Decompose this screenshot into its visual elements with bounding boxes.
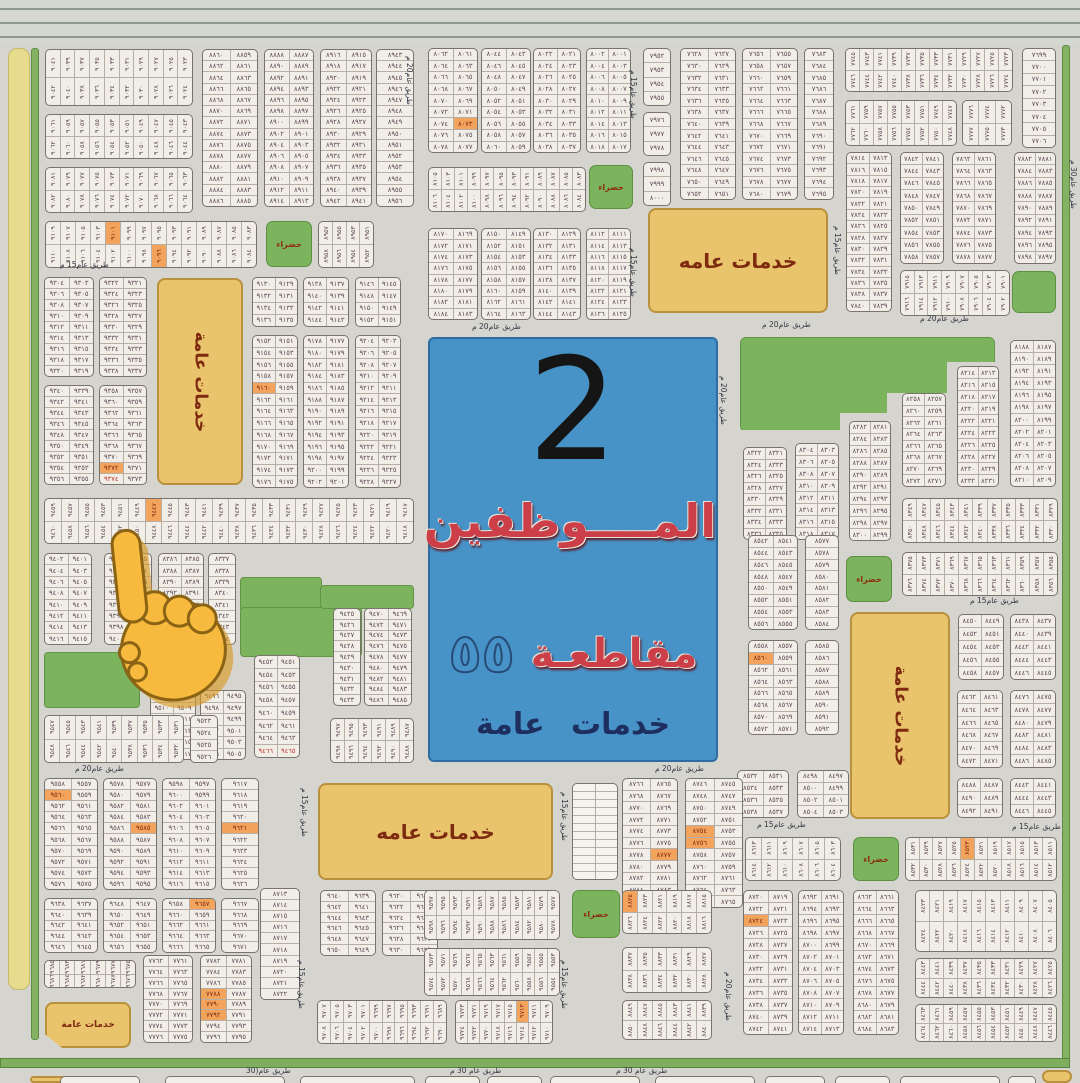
parcel-cell: ٨٠٩٧ (480, 168, 493, 189)
parcel-cell: ٨٥٣١ (906, 838, 919, 859)
parcel-cell: ٨٨٢١ (652, 891, 667, 912)
parcel-cell: ٧٩٧٧ (644, 127, 670, 140)
parcel-number: ٩٤٥٣ (99, 503, 107, 517)
parcel-row: ٨٣٢٢٨٣٢١ (744, 448, 786, 459)
parcel-row: ٧٨٨٢٧٨٨١ (1015, 153, 1055, 164)
parcel-cell: ٩٥٨٢ (104, 801, 130, 811)
parcel-cell: ٩٥٤٥ (59, 716, 74, 739)
parcel-cell: ٩٥٩٦ (436, 916, 448, 940)
parcel-cell: ٩٥٣٤ (152, 740, 167, 763)
parcel-number: ٨٦٠٧ (797, 841, 805, 855)
parcel-cell: ٧٩٠٦ (968, 294, 982, 316)
parcel-cell: ٨١٧٧ (453, 275, 478, 285)
parcel-row: ٨٢٧٠٨٢٦٩ (903, 463, 945, 475)
parcel-number: ٩٠٧٠ (137, 194, 145, 208)
parcel-block: ٩٧٠٧٩٧٠٥٩٧٠٣٩٧٠١٩٦٩٩٩٦٩٧٩٦٩٥٩٦٩٣٩٦٩١٩٦٨٩… (317, 1000, 447, 1044)
parcel-cell: ٨٧٨٢ (623, 873, 650, 884)
parcel-cell: ٩٥٥٩ (510, 949, 522, 972)
parcel-cell: ٩١٠١ (105, 222, 120, 244)
parcel-number: ٩٥٧٤ (427, 977, 435, 991)
parcel-cell: ٧٨٥١ (922, 215, 944, 226)
parcel-row: ٨٧٤٦٨٧٤٥ (686, 779, 742, 790)
parcel-cell: ٨١٣٧ (557, 275, 581, 285)
parcel-cell: ٩٠٦٤ (177, 191, 192, 213)
parcel-cell: ٨٥٦٠ (749, 653, 773, 664)
parcel-row: ٧٧٩٢٧٧٩١ (201, 1009, 251, 1020)
parcel-number: ٨٤٤٦ (1045, 1025, 1053, 1039)
parcel-cell: ٨٨٣٦ (637, 971, 652, 993)
parcel-cell: ٨٧٣٥ (768, 987, 793, 998)
parcel-cell: ٨٤٥٧ (957, 1005, 971, 1023)
parcel-block: ٩١٣٨٩١٣٧٩١٤٠٩١٣٩٩١٤٢٩١٤١٩١٤٤٩١٤٣ (303, 277, 349, 327)
parcel-row: ٨٠٤٤٨٠٤٣ (482, 49, 530, 60)
parcel-cell: ٨٦٨٤ (854, 1023, 876, 1034)
parcel-row: ٨٥٨٣ (806, 606, 838, 618)
parcel-row: ٨٧٧٠٨٧٦٩ (623, 801, 677, 813)
parcel-row: ٨١٨٠٨١٧٩ (429, 285, 477, 296)
parcel-number: ٩٠٨١ (49, 172, 57, 186)
parcel-row: ٧٧٩٤٧٧٩٣ (201, 1020, 251, 1031)
parcel-number: ٧٧٣٦ (918, 74, 926, 88)
parcel-cell: ٩٤٦٣ (277, 733, 300, 745)
parcel-cell: ٨٤٦٤ (916, 1024, 929, 1042)
parcel-cell: ٨٧٠٠ (799, 939, 821, 950)
parcel-cell: ٨٥٢٥ (946, 838, 960, 859)
parcel-cell: ٩٦٧٥ (120, 961, 135, 974)
parcel-number: ٨٠٨٥ (562, 172, 570, 186)
parcel-cell: ٩٣٣٦ (100, 355, 123, 365)
parcel-cell: ٨٣٥٨ (1029, 575, 1043, 596)
parcel-cell: ٨٧١٣ (821, 1023, 844, 1034)
parcel-cell: ٨١٥٣ (506, 252, 531, 262)
parcel-cell: ٨٣٢١ (765, 448, 787, 459)
parcel-cell: ٩٥٨٩ (130, 846, 157, 856)
parcel-number: ٨١٠٥ (431, 172, 439, 186)
parcel-row: ٨٢٣٠٨٢٢٩ (958, 462, 998, 474)
parcel-cell: ٨٠٨٨ (546, 190, 559, 211)
parcel-cell: ٨٦١٢ (761, 860, 777, 881)
parcel-row: ٨٣٢٤٨٣٢٣ (744, 459, 786, 471)
parcel-cell: ٨٠٣٧ (557, 142, 581, 153)
parcel-cell: ٨٠١١ (608, 107, 630, 118)
parcel-block-partial (60, 1076, 140, 1083)
parcel-number: ٧٩١٤ (917, 297, 925, 311)
parcel-cell: ٩١٦٩ (275, 441, 298, 452)
parcel-row: ٧٧٠٥ (1023, 122, 1055, 134)
parcel-cell: ٩٠٣٦ (89, 78, 104, 105)
parcel-cell (595, 784, 618, 791)
parcel-cell: ٩٣٢٩ (123, 322, 147, 332)
parcel-cell: ٩٠٢٩ (133, 50, 148, 77)
parcel-cell: ٧٧٥٢ (914, 124, 928, 146)
parcel-cell: ٨٠٠٧ (608, 84, 630, 95)
parcel-cell: ٩٤٩٣ (358, 719, 372, 740)
parcel-cell: ٧٦٥٦ (743, 49, 770, 60)
parcel-number: ٨٣٤٧ (920, 503, 928, 517)
parcel-block: ٨١٧٠٨١٦٩٨١٧٢٨١٧١٨١٧٤٨١٧٣٨١٧٦٨١٧٥٨١٧٨٨١٧٧… (428, 228, 478, 320)
parcel-cell: ٩٠٤٠ (60, 78, 75, 105)
parcel-row: ٧٧٩٦٧٧٩٥ (201, 1031, 251, 1042)
parcel-cell: ٩٤٧٤ (365, 631, 388, 641)
parcel-row: ٩١٣٦٩١٣٥ (253, 314, 297, 326)
parcel-cell: ٩٣٤٣ (69, 408, 94, 418)
parcel-cell: ٩٠٥٣ (104, 115, 119, 136)
parcel-cell: ٩٠٩٩ (120, 222, 135, 244)
parcel-cell: ٨٩٥٣ (377, 162, 413, 172)
parcel-cell: ٨٤٧٧ (1033, 704, 1056, 716)
parcel-cell: ٩٤٩٦ (344, 741, 358, 762)
parcel-number: ٨٨٤١ (685, 1003, 693, 1017)
parcel-cell: ٨٤٦٥ (980, 717, 1003, 729)
parcel-row: ٧٨٢٢٧٨٢١ (847, 197, 891, 208)
parcel-cell: ٨٢٢١ (978, 415, 999, 426)
parcel-number: ٨٤٢٤ (919, 929, 927, 943)
parcel-cell: ٩١٨٠ (304, 348, 326, 359)
parcel-row: ٨١٥٨٨١٥٧ (482, 274, 530, 285)
parcel-cell: ٩٣٣٢ (100, 333, 123, 343)
parcel-number: ٨٤٤٧ (1031, 1007, 1039, 1021)
parcel-cell: ٩٠٦٩ (133, 168, 148, 190)
parcel-cell: ٧٦٨٩ (805, 119, 833, 130)
parcel-cell: ٩١٥١ (275, 336, 298, 347)
parcel-cell: ٩٤٠٩ (68, 600, 92, 610)
parcel-row: ٩٤٢٦ (334, 619, 360, 630)
parcel-cell: ٨٩٥٨ (319, 245, 332, 267)
parcel-number: ٨٤٤٣ (919, 961, 927, 975)
parcel-number: ٨٩٥٤ (349, 249, 357, 263)
parcel-cell: ٨٨٢٨ (696, 971, 711, 993)
parcel-number: ٧٧٣٩ (890, 52, 898, 66)
parcel-cell: ٧٧٦٢ (144, 956, 168, 966)
parcel-row: ٩٦١٧ (222, 779, 258, 789)
parcel-cell: ٨٥٧٩ (806, 560, 838, 571)
parcel-row: ٧٦٣٤٧٦٣٣ (681, 83, 735, 95)
parcel-row: ٧٨٢٨٧٨٢٧ (847, 232, 891, 243)
parcel-row: ٨٠٥٠٨٠٤٩ (482, 83, 530, 95)
parcel-row: ٩٦١٨ (222, 789, 258, 800)
parcel-cell: ٨٤٣٩ (1033, 628, 1056, 640)
parcel-row: ٩١٣٨٩١٣٧ (304, 278, 348, 289)
parcel-number: ٩٠٦٧ (152, 172, 160, 186)
parcel-number: ٩٧٢٤ (458, 1026, 466, 1040)
parcel-cell: ٨٥٨٣ (806, 607, 838, 618)
parcel-number: ٩٧١٦ (506, 1026, 514, 1040)
parcel-cell: ٨٧٦٢ (686, 873, 714, 884)
parcel-cell: ٨٩٥٥ (377, 185, 413, 195)
parcel-number: ٩٤٢٠ (384, 525, 392, 539)
parcel-cell: ٩٤٥٥ (277, 682, 300, 694)
parcel-cell: ٩٢٢٨ (356, 476, 378, 487)
parcel-number: ٩٥٤٨ (48, 744, 56, 758)
parcel-number: ٨٤٣٤ (989, 981, 997, 995)
parcel-cell: ٨٧٤٦ (686, 779, 714, 790)
parcel-cell: ٧٧٨٦ (201, 978, 226, 988)
parcel-cell: ٩٢٠٦ (356, 348, 378, 359)
parcel-cell: ٨٤٤٦ (1011, 805, 1033, 817)
parcel-cell: ٩٢٠٨ (356, 359, 378, 370)
parcel-cell: ٨٤٤٥ (1033, 805, 1056, 817)
parcel-number: ٩٤٤٥ (166, 503, 174, 517)
parcel-cell: ٧٨٢٦ (847, 221, 869, 231)
parcel-cell: ٨٦٦٥ (876, 915, 899, 926)
parcel-cell: ٨١٥٦ (482, 263, 506, 273)
road-label: طريق عام15 م (1012, 822, 1061, 831)
parcel-cell: ٨٩٣٩ (346, 185, 372, 195)
parcel-cell: ٩٦٩٢ (420, 1023, 433, 1044)
parcel-cell: ٩٧١٣ (516, 1001, 528, 1022)
parcel-cell: ٨٠٤٨ (482, 72, 506, 83)
parcel-cell: ٩٥٦١ (498, 949, 510, 972)
parcel-number: ٧٧٦١ (848, 105, 856, 119)
parcel-number: ٨٨٤٧ (641, 1003, 649, 1017)
parcel-row: ٨٠٥٤٨٠٥٣ (482, 106, 530, 118)
parcel-number: ٨٦١٢ (765, 863, 773, 877)
parcel-cell: ٩١٥٩ (275, 383, 298, 394)
parcel-number: ٩٠٧٨ (78, 194, 86, 208)
parcel-cell: ٩٦٧١ (222, 942, 258, 952)
parcel-number: ٩٧١٣ (518, 1004, 526, 1018)
parcel-row: ٨٧٦٢٨٧٦١ (686, 872, 742, 884)
parcel-cell: ٩٤٨٤ (365, 684, 388, 694)
parcel-cell: ٨٧١٣ (261, 889, 299, 899)
parcel-row: ٩٤٩٨٩٤٩٦٩٤٩٤٩٤٩٢٩٤٩٠٩٤٨٨ (331, 740, 413, 762)
parcel-number: ٧٧٦٠ (862, 127, 870, 141)
parcel-row: ٩٦٤٠٩٦٣٩ (321, 891, 375, 901)
parcel-row: ٧٧٤٥٧٧٤٣٧٧٤١٧٧٣٩٧٧٣٧٧٧٣٥٧٧٣٣٧٧٣١٧٧٢٩٧٧٢٧… (846, 49, 1012, 70)
parcel-cell: ٩٣٤٩ (69, 441, 94, 451)
parcel-cell: ٩٥٢٥ (191, 740, 217, 751)
parcel-row: ٨١٥٠٨١٤٩ (482, 229, 530, 239)
parcel-row: ٨٩٠٤٨٩٠٣ (265, 139, 313, 150)
parcel-row: ٨٠٥٨٨٠٥٧ (482, 129, 530, 141)
parcel-cell: ٩٤٧٩ (388, 663, 412, 673)
parcel-cell: ٨٨٨٣ (230, 185, 258, 195)
parcel-row: ٩٦٢٠ (222, 811, 258, 822)
parcel-row: ٨٨٩٦٨٨٩٥ (265, 94, 313, 105)
parcel-cell: ٩٦٤٣ (348, 913, 376, 923)
parcel-cell: ٨٤٣٦ (971, 979, 985, 998)
parcel-cell: ٩٤٠٤ (45, 565, 68, 575)
parcel-cell: ٩١٩٤ (304, 430, 326, 441)
parcel-block: ٨١١٢٨١١١٨١١٤٨١١٣٨١١٦٨١١٥٨١١٨٨١١٧٨١٢٠٨١١٩… (586, 228, 631, 320)
road-label: طريق عام15 م (560, 960, 569, 1009)
parcel-cell: ٩٤١٧ (396, 499, 413, 521)
parcel-cell: ٨٤٢٢ (929, 922, 943, 952)
parcel-cell: ٨٢٩٥ (870, 505, 891, 516)
parcel-row: ٩١٦٠٩١٥٩ (253, 382, 297, 394)
parcel-cell: ٩٦٠٦ (163, 823, 189, 833)
parcel-cell: ٨٨٣٧ (623, 948, 637, 970)
parcel-row: ٨٣٧٥٨٣٧٣٨٣٧١٨٣٦٩٨٣٦٧٨٣٦٥٨٣٦٣٨٣٦١٨٣٥٩٨٣٥٧… (903, 553, 1057, 574)
parcel-number: ٨٥١٦ (1018, 863, 1026, 877)
parcel-row: ٩٤٩٧٩٤٩٥٩٤٩٣٩٤٩١٩٤٨٩٩٤٨٧ (331, 719, 413, 740)
parcel-cell: ٨٤٦٣ (980, 704, 1003, 716)
parcel-cell: ٨٧٠٩ (821, 999, 844, 1010)
parcel-cell: ٩٤٦٤ (255, 733, 277, 745)
road-label: طريق عام15 م (629, 248, 638, 297)
parcel-cell: ٩٧٢٣ (456, 1001, 467, 1022)
parcel-cell: ٨٠٩١ (520, 168, 533, 189)
parcel-cell: ٨٣٥٩ (1015, 553, 1029, 574)
parcel-number: ٩٥٦٨ (463, 977, 471, 991)
parcel-cell: ٨٢٨٧ (870, 458, 891, 469)
parcel-row: ٨٥٨١ (806, 582, 838, 594)
parcel-cell: ٧٨٢١ (869, 198, 892, 208)
parcel-cell: ٩١٧٩ (326, 348, 349, 359)
parcel-cell: ٨١٥٧ (506, 275, 531, 285)
parcel-cell: ٨٣٣٥ (1001, 499, 1015, 520)
parcel-cell: ٨٥٦٨ (749, 700, 773, 711)
parcel-cell: ٨٣٥٧ (1029, 553, 1043, 574)
road-label: طريق عام30 م (1069, 160, 1078, 209)
parcel-row: ٨٩٥٢ (377, 150, 413, 161)
parcel-cell: ٨٤٢٤ (916, 922, 929, 952)
parcel-cell: ٩٥٨٧ (485, 891, 497, 915)
parcel-row: ٨٤٦٣٨٤٦١٨٤٥٩٨٤٥٧٨٤٥٥٨٤٥٣٨٤٥١٨٤٤٩٨٤٤٧٨٤٤٥ (916, 1005, 1056, 1023)
parcel-cell: ٨٥٤٧ (773, 571, 798, 582)
parcel-cell: ٨٨٩٦ (265, 95, 289, 105)
parcel-number: ٧٧٤٥ (848, 52, 856, 66)
parcel-cell: ٨٣٤٤ (944, 521, 958, 542)
public-services-label: خدمات عامة (61, 1020, 114, 1030)
parcel-row: ٨٩١٤٨٩١٣ (265, 195, 313, 206)
parcel-block: ٨٨٢٥٨٨٢٣٨٨٢١٨٨١٩٨٨١٧٨٨١٥٨٨٢٦٨٨٢٤٨٨٢٢٨٨٢٠… (622, 890, 712, 934)
parcel-block: ٨١٥٠٨١٤٩٨١٥٢٨١٥١٨١٥٤٨١٥٣٨١٥٦٨١٥٥٨١٥٨٨١٥٧… (481, 228, 531, 320)
parcel-cell: ٨٣٣١ (765, 506, 787, 517)
parcel-number: ٨٦٠٤ (829, 863, 837, 877)
parcel-cell: ٨٥٦٦ (749, 688, 773, 699)
parcel-cell: ٨٢٢٦ (958, 439, 978, 450)
parcel-cell: ٧٧٣١ (942, 49, 956, 70)
parcel-cell (595, 864, 618, 871)
parcel-row: ٨٦٦٢٨٦٦١ (854, 891, 898, 902)
parcel-number: ٩٠٨٨ (215, 249, 223, 263)
parcel-number: ٨٤٥٦ (975, 1025, 983, 1039)
parcel-cell: ٨٧٢٥ (768, 927, 793, 938)
parcel-number: ٨٨٢٩ (685, 952, 693, 966)
parcel-cell: ٧٦٤٢ (681, 130, 708, 141)
parcel-cell: ٩٦٠٩ (189, 846, 216, 856)
parcel-cell: ٨١١٣ (608, 240, 630, 250)
parcel-number: ٩٤١٩ (384, 503, 392, 517)
parcel-cell: ٨٦٠٤ (824, 860, 840, 881)
parcel-number: ٩٦٨٦ (48, 975, 56, 988)
parcel-row: ٩٣٤٨٩٣٤٧ (45, 429, 93, 440)
parcel-row: ٧٨٧٢٧٨٧١ (953, 214, 995, 226)
parcel-cell: ٩٣٤١ (69, 397, 94, 407)
parcel-cell: ٩٣٣٥ (123, 355, 147, 365)
parcel-cell: ٩٠٤٣ (177, 115, 192, 136)
parcel-row: ٧٦٦٨٧٦٦٧ (743, 118, 797, 130)
green-space-label: خضراء (583, 910, 608, 919)
parcel-cell: ٩٦٦٥ (189, 942, 216, 952)
parcel-cell: ٨٥٥٤ (749, 607, 773, 618)
parcel-row: ٧٧٨٦٧٧٨٥ (201, 977, 251, 988)
parcel-row: ٨٧٢٢٨٧٢١ (744, 902, 792, 914)
parcel-number: ٩٦٩٠ (436, 1026, 444, 1040)
parcel-row: ٨١١٤٨١١٣ (587, 239, 630, 250)
parcel-row: ٨٣٠٤٨٣٠٣ (796, 444, 838, 455)
parcel-cell: ٨٤٤١ (929, 959, 943, 978)
parcel-row: ٩٦٥٢٩٦٥١ (104, 920, 156, 931)
parcel-cell: ٩٦٠٧ (189, 834, 216, 844)
parcel-number: ٩٠٩٠ (200, 249, 208, 263)
parcel-row (573, 839, 617, 847)
parcel-cell: ٨٧٥٥ (714, 838, 743, 849)
parcel-cell: ٧٧٥٨ (873, 124, 887, 146)
parcel-cell: ٨٧٥٤ (686, 826, 714, 837)
parcel-cell: ٨٠٦٢ (429, 49, 453, 60)
parcel-number: ٩٤٨٩ (389, 723, 397, 737)
parcel-row: ٨٤٥٨٨٤٥٧ (959, 666, 1003, 679)
parcel-row: ٨٥٦٨٨٥٦٧ (749, 699, 797, 711)
parcel-row: ٧٩٧٨ (644, 141, 670, 155)
parcel-row: ٧٨٦٢٧٨٦١ (953, 153, 995, 164)
parcel-cell: ٧٨٥٨ (901, 252, 922, 263)
parcel-cell: ٩٦٦٢ (163, 921, 189, 931)
parcel-cell: ٨١١١ (608, 229, 630, 239)
parcel-number: ٧٧٦٢ (848, 127, 856, 141)
green-space-label: خضراء (276, 240, 301, 249)
parcel-cell: ٩١٠٩ (46, 222, 60, 244)
parcel-row: ٩٣٤٤٩٣٤٣ (45, 407, 93, 418)
parcel-cell: ٧٧٥٧ (873, 101, 887, 123)
parcel-cell: ٩٦٨٠ (90, 975, 105, 988)
parcel-cell: ٩٠٥٠ (133, 137, 148, 158)
parcel-block: ٧٧٧٦٧٧٧٤٧٧٧٢٧٧٧٧٧٧٧٥٧٧٧٣ (962, 100, 1012, 146)
parcel-cell: ٩٤٨٣ (388, 684, 412, 694)
parcel-row (573, 799, 617, 807)
parcel-number: ٩٤٢٤ (351, 525, 359, 539)
parcel-row: ٧٦٦٦٧٦٦٥ (743, 106, 797, 118)
parcel-cell: ٩٤٨١ (388, 674, 412, 684)
parcel-cell: ٨٨٧٩ (230, 162, 258, 172)
parcel-number: ٩٥٣٣ (156, 720, 164, 734)
parcel-number: ٩٥٩٧ (427, 896, 435, 910)
parcel-cell: ٧٩٥٢ (644, 49, 670, 62)
parcel-cell: ٩١٤٩ (378, 303, 401, 314)
parcel-row: ٩١٤٠٩١٣٩ (304, 289, 348, 301)
parcel-row: ٧٧٧٦٧٧٧٥ (144, 1031, 192, 1042)
parcel-cell: ٨٤١٩ (943, 891, 957, 921)
parcel-cell: ٨٧٢١ (768, 903, 793, 914)
parcel-row: ٨٣٤٩٨٣٤٧٨٣٤٥٨٣٤٣٨٣٤١٨٣٣٩٨٣٣٧٨٣٣٥٨٣٣٣٨٣٣١… (903, 499, 1057, 520)
parcel-cell: ٨٤٦٤ (958, 704, 980, 716)
parcel-cell: ٩٤٢٦ (334, 620, 360, 630)
parcel-cell: ٩٠٨٦ (226, 245, 241, 267)
parcel-cell: ٧٨٧٣ (974, 227, 996, 238)
parcel-row: ٨٢٩٤٨٢٩٣ (850, 492, 890, 504)
parcel-row: ٨٠٣٦٨٠٣٥ (534, 129, 580, 141)
parcel-row: ٩٧٠٨٩٧٠٦٩٧٠٤٩٧٠٢٩٧٠٠٩٦٩٨٩٦٩٦٩٦٩٤٩٦٩٢٩٦٩٠ (318, 1022, 446, 1044)
parcel-cell: ٨٧٥٦ (686, 838, 714, 849)
parcel-cell: ٩٣٥٤ (45, 463, 69, 473)
parcel-cell (595, 840, 618, 847)
parcel-row: ٩٤٢٥ (334, 609, 360, 619)
parcel-cell: ٨٠٦٧ (453, 84, 478, 95)
parcel-number: ٩١٠٠ (124, 249, 132, 263)
parcel-cell: ٨٨٣٣ (652, 948, 667, 970)
parcel-row: ٨٩٢٢٨٩٢١ (321, 83, 371, 94)
parcel-row: ٨٠٢٢٨٠٢١ (534, 49, 580, 60)
parcel-cell: ٩٤٢٦ (329, 522, 346, 544)
parcel-cell: ٨٥٦٢ (749, 665, 773, 676)
parcel-cell: ٨٣١٣ (817, 504, 839, 515)
parcel-cell: ٧٨٥٧ (922, 252, 944, 263)
parcel-cell: ٨١٧١ (453, 240, 478, 250)
parcel-cell: ٨٨١٨ (681, 913, 696, 934)
parcel-row: ٩٥٩٨٩٥٩٦٩٥٩٤٩٥٩٢٩٥٩٠٩٥٨٨٩٥٨٦٩٥٨٤٩٥٨٢٩٥٨٠… (425, 915, 559, 940)
